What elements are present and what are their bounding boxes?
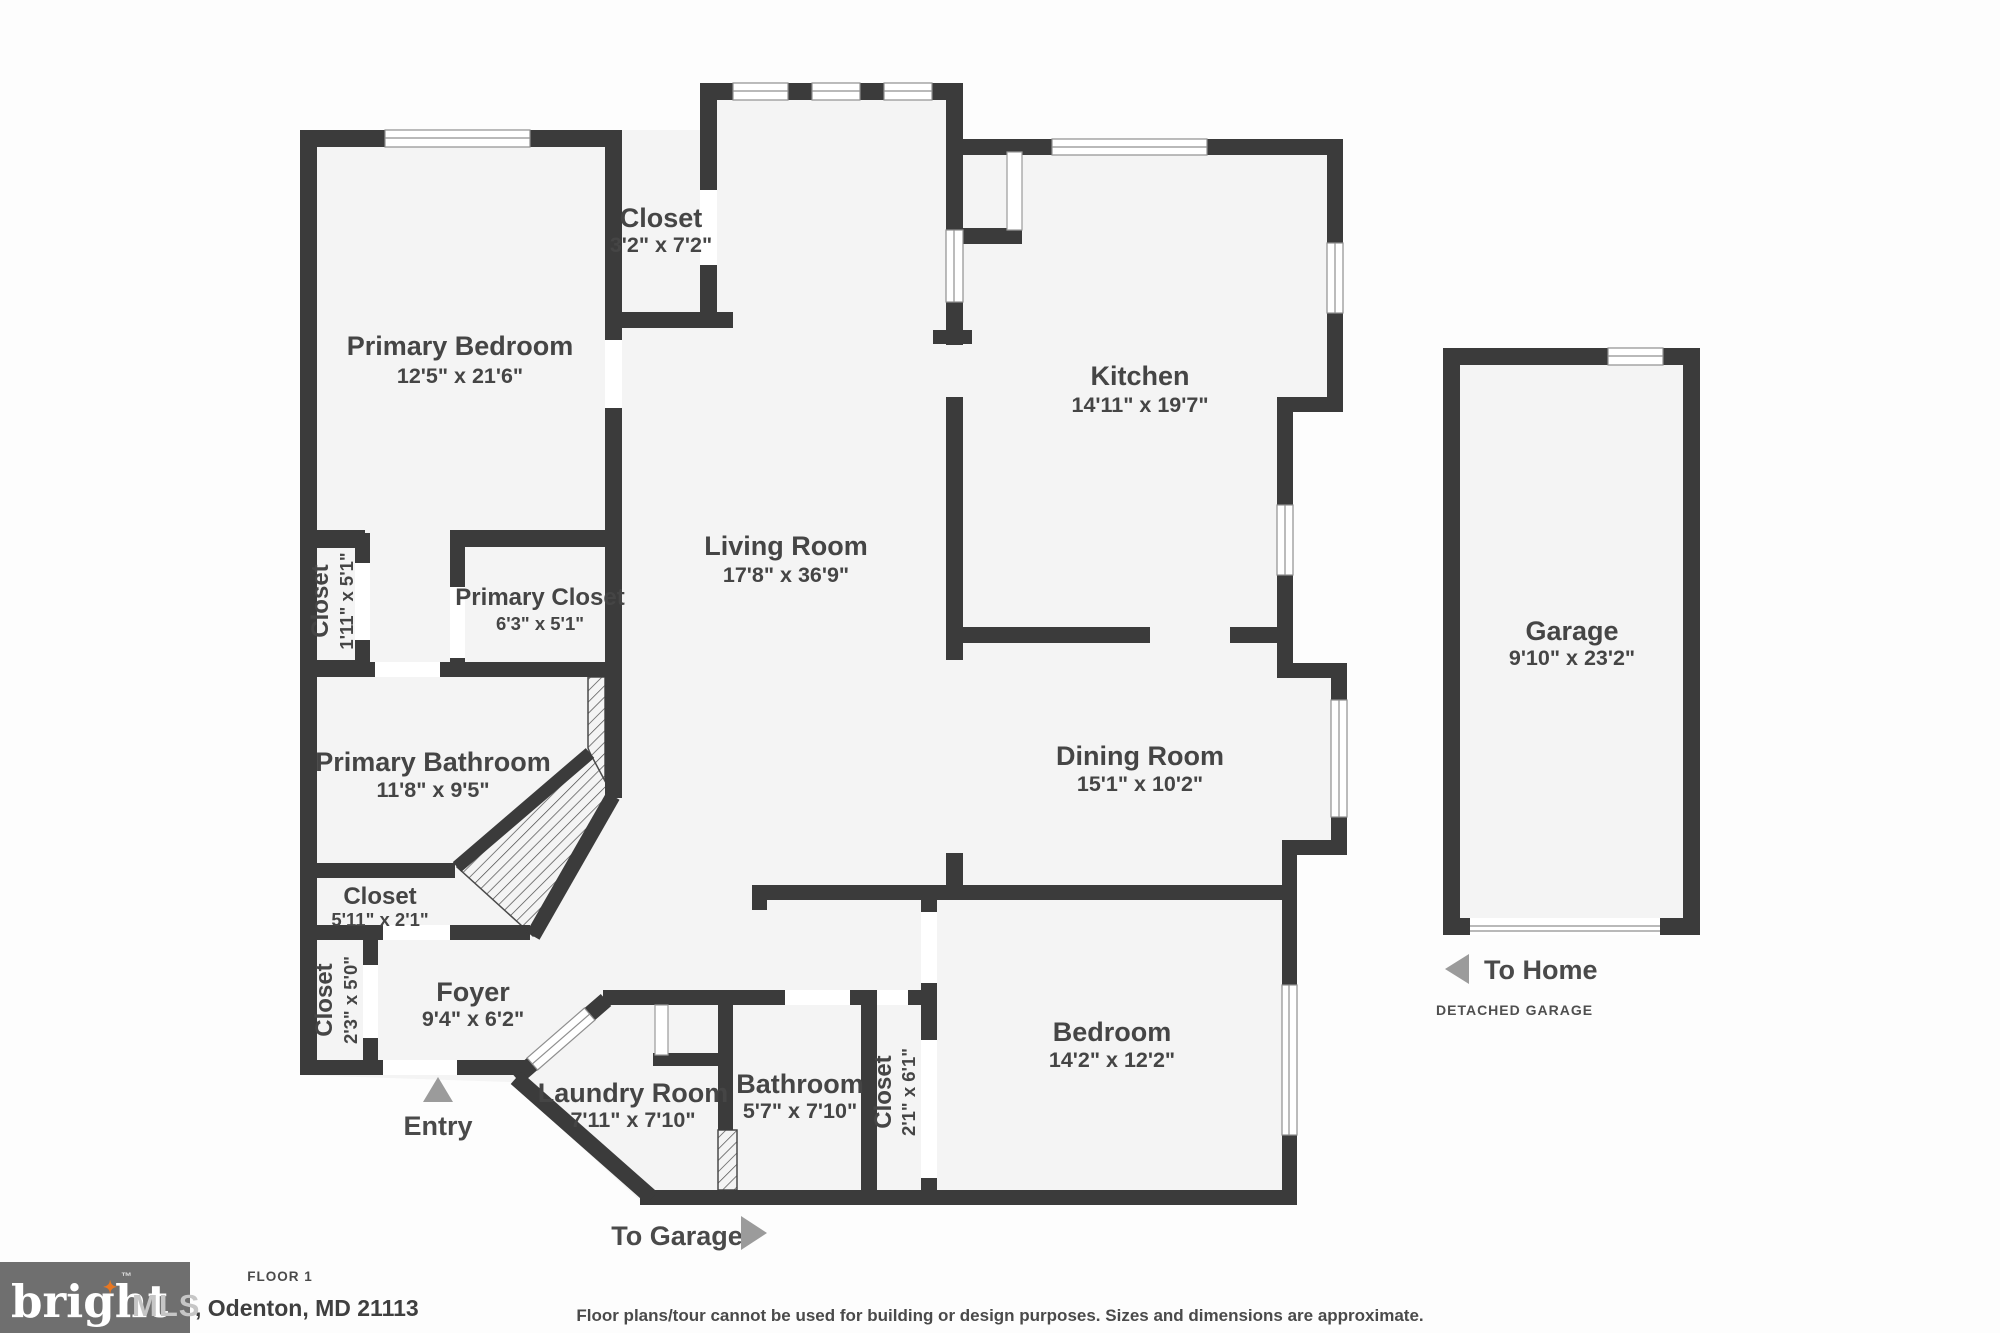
room-dims: 1'11" x 5'1"	[336, 552, 357, 649]
window	[1608, 348, 1663, 365]
room-name: Closet	[307, 564, 334, 637]
room-dims: 15'1" x 10'2"	[1077, 772, 1203, 796]
room-dims: 2'1" x 6'1"	[898, 1048, 919, 1136]
room-name: Dining Room	[1056, 741, 1224, 771]
floor-plan-canvas: Primary Bedroom 12'5" x 21'6" Closet 3'2…	[0, 0, 2000, 1333]
room-name: Primary Closet	[455, 584, 624, 611]
window	[1282, 985, 1297, 1135]
window	[884, 83, 932, 100]
room-dims: 14'11" x 19'7"	[1071, 393, 1208, 417]
door-gap	[605, 340, 622, 408]
room-label-garage: Garage 9'10" x 23'2"	[1509, 616, 1635, 670]
room-name: Closet	[311, 963, 338, 1036]
room-name: Bedroom	[1053, 1017, 1172, 1047]
entry-arrow-icon	[423, 1077, 453, 1102]
room-label-living-room: Living Room 17'8" x 36'9"	[704, 531, 868, 587]
room-label-closet-1-11: Closet 1'11" x 5'1"	[307, 552, 357, 649]
window	[733, 83, 788, 100]
room-label-foyer: Foyer 9'4" x 6'2"	[422, 977, 524, 1031]
to-home-arrow-icon	[1445, 954, 1469, 984]
address-text: , Odenton, MD 21113	[195, 1295, 419, 1321]
room-label-bathroom: Bathroom 5'7" x 7'10"	[736, 1069, 864, 1123]
room-dims: 9'4" x 6'2"	[422, 1007, 524, 1031]
pantry-door	[1007, 152, 1022, 230]
entry-label: Entry	[403, 1111, 472, 1141]
window	[1331, 700, 1347, 817]
room-label-closet-2-3: Closet 2'3" x 5'0"	[311, 956, 361, 1044]
hatch-laundry-strip	[718, 1130, 737, 1190]
window	[1277, 505, 1293, 575]
room-dims: 3'2" x 7'2"	[610, 233, 712, 257]
door-gap	[375, 662, 440, 677]
window	[812, 83, 860, 100]
pass-through-window	[946, 230, 963, 302]
room-dims: 9'10" x 23'2"	[1509, 646, 1635, 670]
window	[1327, 243, 1343, 313]
room-dims: 14'2" x 12'2"	[1049, 1048, 1175, 1072]
garage-door	[1470, 918, 1660, 935]
entry-door-gap	[383, 1060, 457, 1075]
room-dims: 11'8" x 9'5"	[376, 778, 489, 802]
room-label-hall-closet: Closet 3'2" x 7'2"	[610, 203, 712, 257]
laundry-nook-door	[655, 1005, 668, 1055]
door-gap	[877, 990, 908, 1005]
room-label-dining-room: Dining Room 15'1" x 10'2"	[1056, 741, 1224, 796]
room-name: Closet	[620, 203, 703, 233]
room-name: Closet	[870, 1055, 897, 1128]
room-name: Primary Bathroom	[315, 747, 551, 777]
brightmls-logo: bright ✦ ™ MLS	[0, 1262, 200, 1333]
room-dims: 6'3" x 5'1"	[496, 613, 584, 634]
detached-garage-label: DETACHED GARAGE	[1436, 1002, 1593, 1018]
floor-label: FLOOR 1	[247, 1269, 313, 1284]
floor-plan-page: Primary Bedroom 12'5" x 21'6" Closet 3'2…	[0, 0, 2000, 1333]
logo-tm-mark: ™	[121, 1271, 132, 1283]
room-fills	[300, 83, 1692, 1205]
door-gap	[363, 965, 378, 1038]
room-dims: 5'7" x 7'10"	[743, 1099, 857, 1123]
to-home-label: To Home	[1484, 955, 1598, 985]
logo-star-icon: ✦	[103, 1278, 117, 1297]
door-gap	[785, 990, 850, 1005]
window	[385, 130, 530, 147]
room-label-closet-2-1: Closet 2'1" x 6'1"	[870, 1048, 919, 1136]
room-name: Garage	[1525, 616, 1618, 646]
logo-suffix-text: MLS	[132, 1288, 200, 1323]
room-dims: 5'11" x 2'1"	[331, 909, 428, 930]
room-label-closet-5-11: Closet 5'11" x 2'1"	[331, 883, 428, 930]
room-dims: 7'11" x 7'10"	[570, 1108, 695, 1132]
room-dims: 2'3" x 5'0"	[340, 956, 361, 1044]
closet-slider-gap	[921, 1040, 937, 1178]
disclaimer-text: Floor plans/tour cannot be used for buil…	[576, 1306, 1423, 1325]
room-name: Living Room	[704, 531, 868, 561]
room-name: Closet	[343, 883, 416, 910]
room-name: Foyer	[436, 977, 510, 1007]
room-dims: 17'8" x 36'9"	[723, 563, 849, 587]
door-gap	[921, 912, 937, 983]
room-dims: 12'5" x 21'6"	[397, 364, 523, 388]
room-name: Kitchen	[1090, 361, 1189, 391]
window	[1052, 139, 1207, 155]
room-name: Primary Bedroom	[347, 331, 574, 361]
footer: FLOOR 1 , Odenton, MD 21113 Floor plans/…	[195, 1269, 1424, 1325]
room-label-bedroom: Bedroom 14'2" x 12'2"	[1049, 1017, 1175, 1072]
room-name: Bathroom	[736, 1069, 864, 1099]
room-label-kitchen: Kitchen 14'11" x 19'7"	[1071, 361, 1208, 417]
room-name: Laundry Room	[538, 1078, 729, 1108]
door-gap	[355, 563, 370, 640]
to-garage-arrow-icon	[741, 1216, 767, 1250]
to-garage-label: To Garage	[611, 1221, 743, 1251]
